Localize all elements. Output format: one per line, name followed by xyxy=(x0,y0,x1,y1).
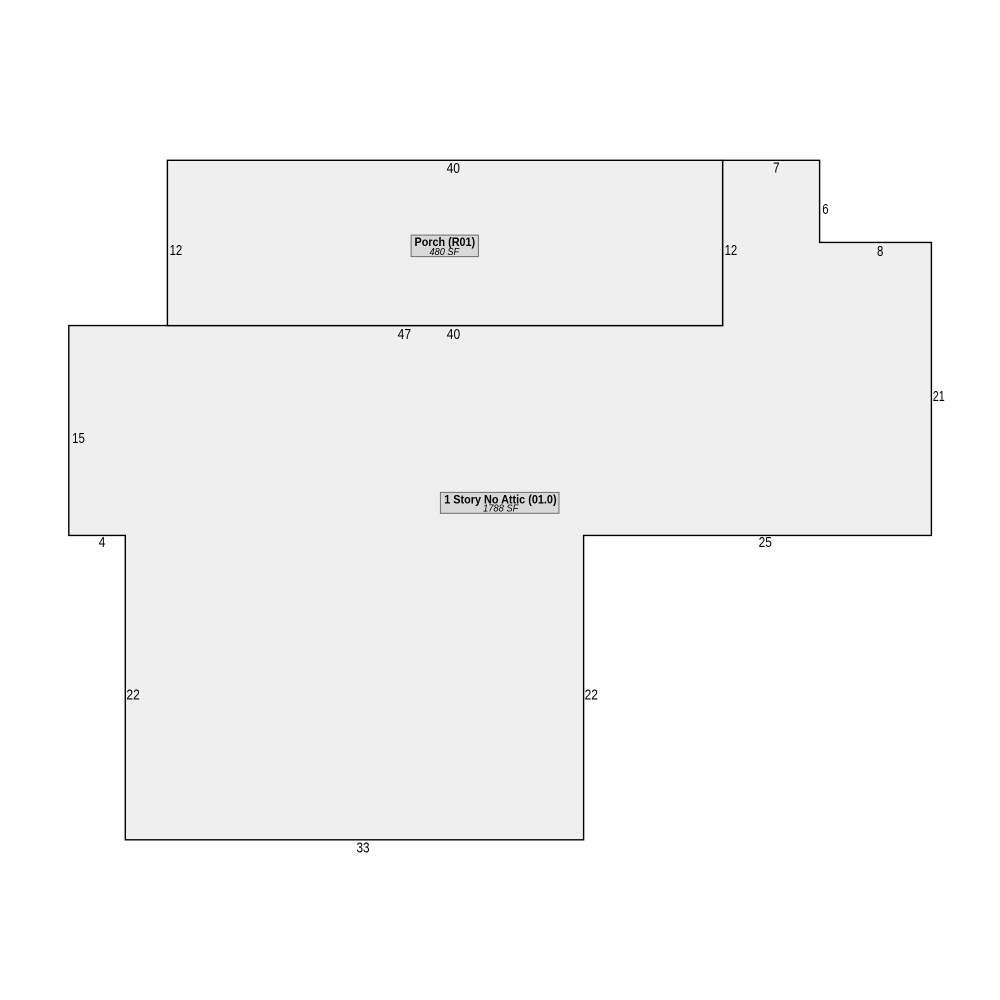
svg-text:8: 8 xyxy=(877,244,883,260)
svg-text:15: 15 xyxy=(72,431,85,447)
svg-text:1788 SF: 1788 SF xyxy=(483,504,519,515)
svg-text:21: 21 xyxy=(933,389,945,405)
svg-text:480 SF: 480 SF xyxy=(430,247,460,258)
svg-text:12: 12 xyxy=(170,243,183,259)
svg-text:40: 40 xyxy=(447,327,460,343)
svg-text:12: 12 xyxy=(725,243,738,259)
svg-text:47: 47 xyxy=(398,327,412,343)
svg-text:22: 22 xyxy=(126,688,139,704)
svg-text:22: 22 xyxy=(585,688,598,704)
svg-text:40: 40 xyxy=(447,161,460,177)
svg-text:4: 4 xyxy=(99,535,106,551)
svg-text:6: 6 xyxy=(822,202,828,218)
svg-text:7: 7 xyxy=(773,161,780,177)
svg-text:25: 25 xyxy=(759,535,772,551)
svg-text:33: 33 xyxy=(356,840,369,856)
